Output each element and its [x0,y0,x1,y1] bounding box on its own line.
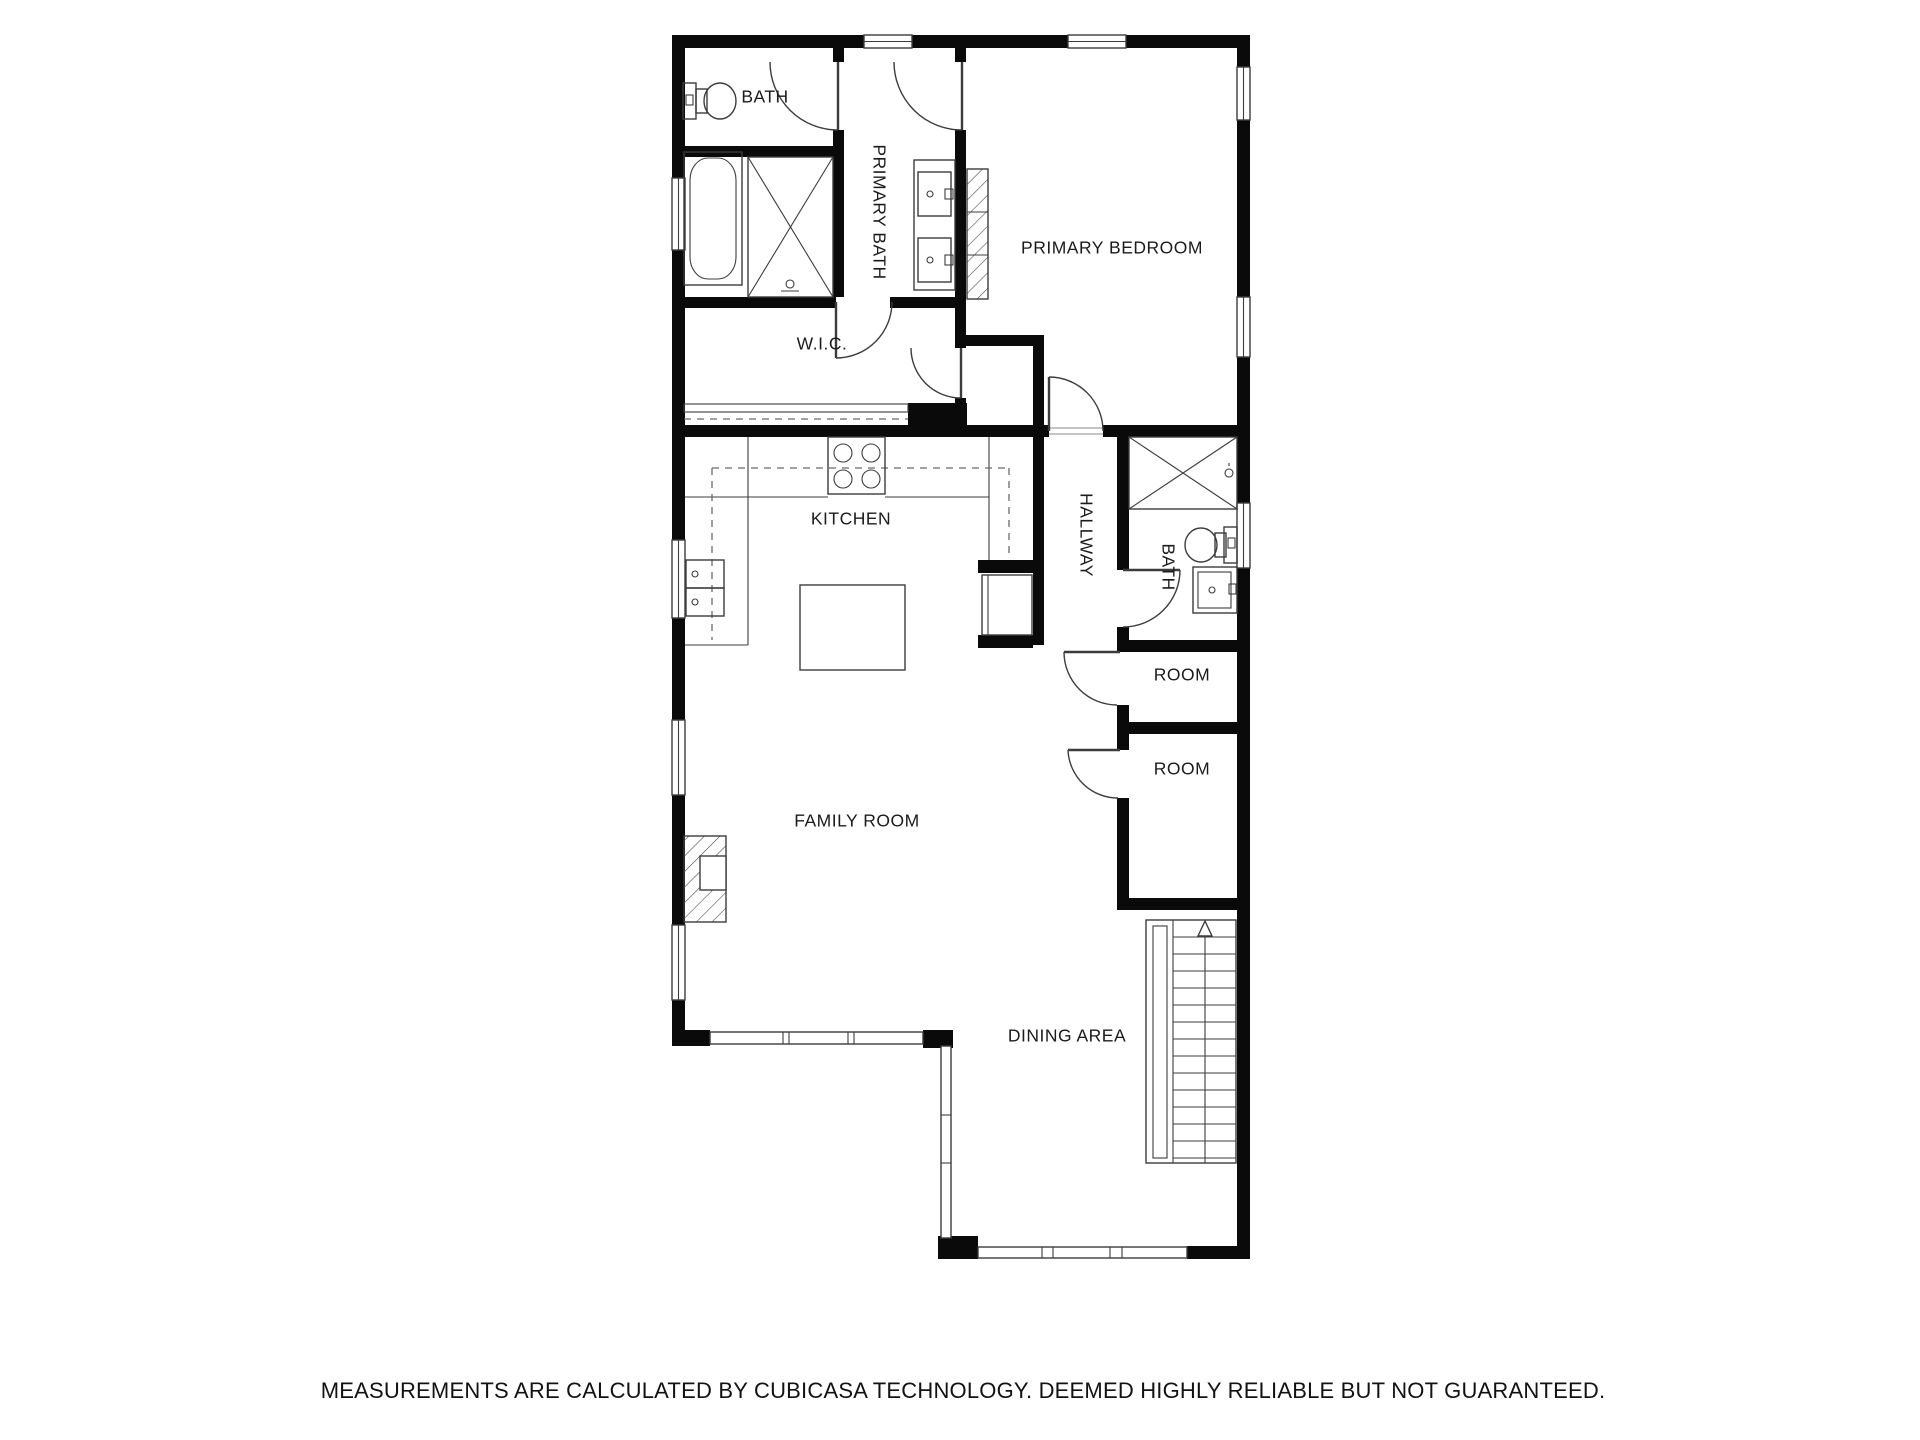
fridge-icon [982,575,1032,635]
door [1064,652,1120,705]
stairs-up-arrow [1198,921,1212,936]
kitchen-sink-icon [686,560,724,616]
double-vanity-icon [914,160,955,290]
closet-rail [684,404,908,419]
room-label-kitchen: KITCHEN [811,509,891,530]
floorplan-canvas [0,0,1920,1440]
shower-icon [748,157,833,297]
stove-icon [828,437,885,494]
shower-icon [1129,437,1237,509]
window [672,540,685,618]
kitchen-counter [685,437,1009,645]
stairs [1146,920,1236,1163]
room-label-primary-bedroom: PRIMARY BEDROOM [1021,238,1203,259]
window [672,178,685,250]
window [1237,297,1250,357]
floorplan-page: { "colors": { "walls": "#0a0a0a", "lines… [0,0,1920,1440]
room-label-primary-bath: PRIMARY BATH [869,144,890,279]
fireplace-icon [684,836,726,922]
bathtub-icon [684,152,742,285]
window [864,35,912,48]
walls [672,35,1250,1259]
door [1068,750,1120,798]
door [911,348,961,398]
door [894,62,962,130]
window [672,720,685,795]
toilet-icon [1185,527,1237,563]
room-label-family-room: FAMILY ROOM [794,811,919,832]
room-label-bath-upper: BATH [741,87,788,108]
window [672,925,685,1000]
sink-icon [1193,567,1237,613]
door [1049,377,1103,434]
room-label-room-2: ROOM [1154,759,1210,780]
window-band-bottom [978,1247,1187,1258]
closet-icon [967,169,988,299]
room-label-bath-hallway: BATH [1158,543,1179,590]
window [1237,67,1250,120]
room-label-room-1: ROOM [1154,665,1210,686]
window-band-south [710,1032,923,1044]
room-label-wic: W.I.C. [797,334,848,355]
window [1068,35,1126,48]
room-label-dining-area: DINING AREA [1008,1026,1126,1047]
window-band-west [941,1046,951,1238]
kitchen-island [800,585,905,670]
window [1237,503,1250,568]
disclaimer-text: MEASUREMENTS ARE CALCULATED BY CUBICASA … [321,1378,1606,1404]
toilet-icon [683,83,736,119]
room-label-hallway: HALLWAY [1076,493,1097,577]
